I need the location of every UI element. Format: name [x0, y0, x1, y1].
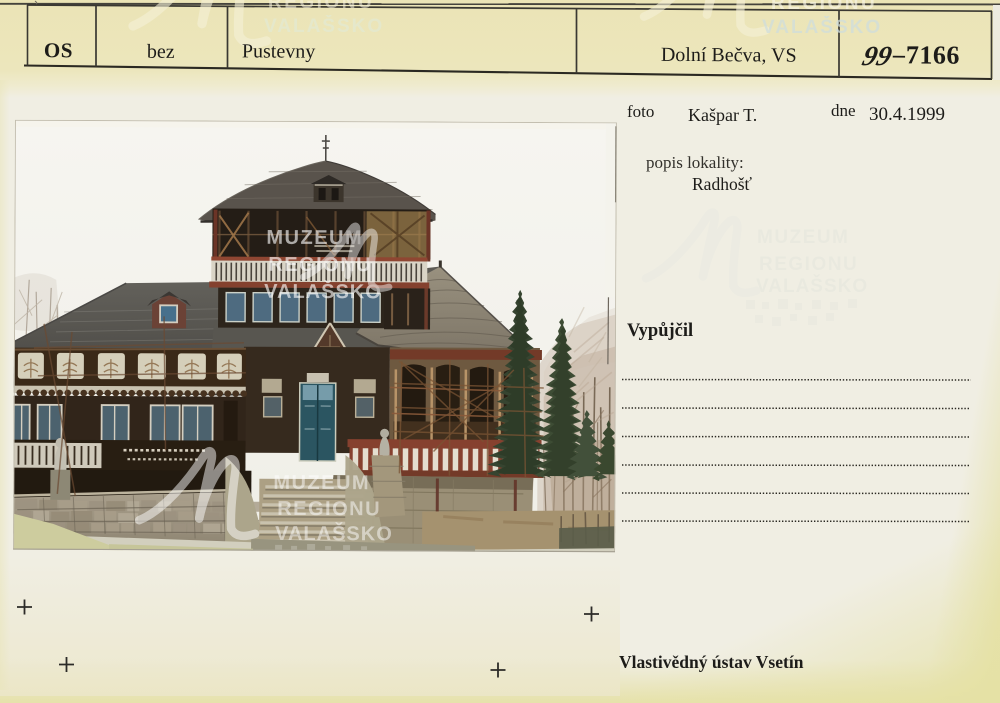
svg-text:VALAŠSKO: VALAŠSKO	[756, 275, 868, 297]
svg-text:MUZEUM: MUZEUM	[757, 227, 849, 248]
svg-text:REGIONU: REGIONU	[268, 254, 372, 276]
svg-text:VALAŠSKO: VALAŠSKO	[275, 521, 393, 546]
svg-text:REGIONU: REGIONU	[759, 254, 858, 275]
svg-text:MUZEUM: MUZEUM	[273, 472, 370, 494]
svg-text:MUZEUM: MUZEUM	[266, 227, 363, 249]
svg-text:REGIONU: REGIONU	[277, 498, 381, 520]
svg-text:VALAŠSKO: VALAŠSKO	[264, 279, 382, 304]
